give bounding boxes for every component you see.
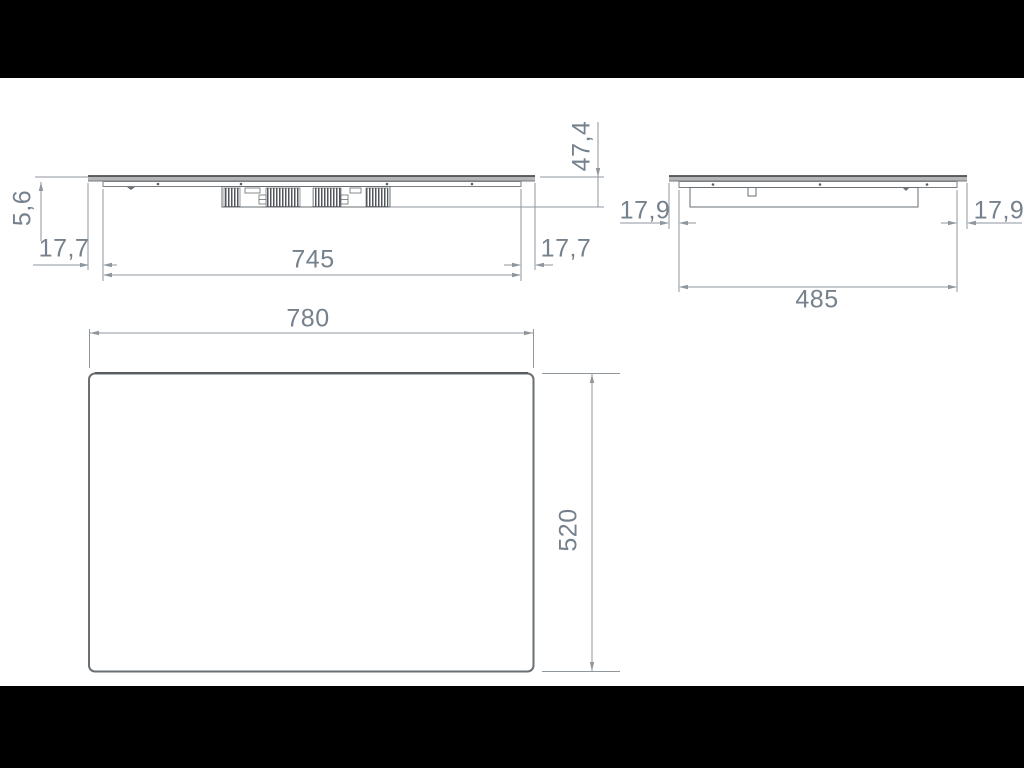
plan-outline [89,374,534,672]
vent-hatch [224,188,240,207]
dim-label-total-height: 47,4 [570,121,595,172]
vent-hatch [313,188,341,207]
side-dimension-lines [620,223,1022,287]
screw-dot [712,183,715,186]
dim-label-overhang-left: 17,7 [39,237,90,262]
plan-view [89,329,620,672]
dim-label-width: 780 [286,307,329,332]
screw-dot [819,183,822,186]
dim-label-overhang-right: 17,7 [541,237,592,262]
side-view [620,176,1022,292]
clip-wedge [127,187,135,190]
side-body-tray [679,182,957,188]
screw-dot [926,183,929,186]
screw-dot [471,183,474,186]
vent-slot [245,188,260,193]
dim-label-side-overhang-right: 17,9 [974,199,1024,224]
dim-label-side-overhang-left: 17,9 [620,199,671,224]
dim-label-glass-thickness: 5,6 [11,190,36,226]
screw-dot [386,183,389,186]
side-arrowheads [660,221,976,289]
dim-label-depth: 520 [557,508,582,551]
screw-dot [240,183,243,186]
side-lower-box [690,188,918,208]
dim-label-cutout-depth: 485 [795,288,838,313]
screw-dot [157,183,160,186]
vent-hatch [366,188,388,207]
drawing-canvas: 5,6 17,7 745 17,7 47,4 17,9 485 17,9 780… [0,0,1024,768]
vent-slot [350,188,361,193]
front-body-tray [103,182,521,187]
vent-hatch [266,188,300,207]
technical-drawing-linework [0,0,1024,768]
dim-label-cutout-width: 745 [291,248,334,273]
